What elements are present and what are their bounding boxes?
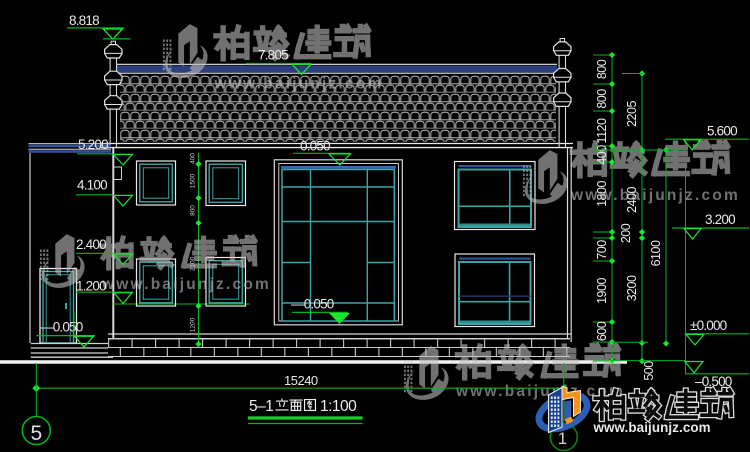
svg-text:800: 800 xyxy=(190,205,197,216)
svg-text:1120: 1120 xyxy=(595,118,609,143)
svg-text:200: 200 xyxy=(619,223,633,243)
svg-text:6100: 6100 xyxy=(649,240,663,266)
svg-text:800: 800 xyxy=(595,89,609,109)
svg-text:8.818: 8.818 xyxy=(69,13,99,28)
svg-text:3200: 3200 xyxy=(625,275,639,301)
svg-text:15240: 15240 xyxy=(284,373,318,388)
svg-text:2400: 2400 xyxy=(625,187,639,213)
svg-text:700: 700 xyxy=(595,240,609,260)
svg-text:www.baijunjz.com: www.baijunjz.com xyxy=(593,420,711,435)
svg-text:1800: 1800 xyxy=(595,181,609,207)
svg-text:500: 500 xyxy=(642,361,656,381)
svg-text:7.805: 7.805 xyxy=(258,48,288,63)
svg-text:5–1: 5–1 xyxy=(249,398,273,415)
svg-text:1900: 1900 xyxy=(595,278,609,304)
svg-text:—0.050: —0.050 xyxy=(291,297,334,312)
svg-text:www.baijunjz.com: www.baijunjz.com xyxy=(214,76,384,93)
svg-text:2205: 2205 xyxy=(625,101,639,127)
svg-text:600: 600 xyxy=(595,321,609,341)
svg-text:800: 800 xyxy=(595,59,609,79)
svg-text:400: 400 xyxy=(190,153,197,164)
svg-text:3.200: 3.200 xyxy=(705,212,735,227)
svg-text:±0.000: ±0.000 xyxy=(690,318,727,333)
svg-text:1.200: 1.200 xyxy=(76,279,106,294)
svg-text:0.050: 0.050 xyxy=(300,139,330,154)
svg-text:5.200: 5.200 xyxy=(78,137,108,152)
svg-text:1: 1 xyxy=(558,429,567,448)
svg-text:1:100: 1:100 xyxy=(320,398,357,415)
svg-text:5: 5 xyxy=(30,422,42,445)
svg-text:1200: 1200 xyxy=(190,317,197,332)
svg-text:5.600: 5.600 xyxy=(707,124,737,139)
svg-text:400: 400 xyxy=(595,145,609,165)
svg-text:2.400: 2.400 xyxy=(76,237,106,252)
svg-text:4.100: 4.100 xyxy=(77,178,107,193)
svg-text:—0.050: —0.050 xyxy=(40,320,83,335)
svg-text:www.baijunjz.com: www.baijunjz.com xyxy=(101,276,271,293)
svg-text:1500: 1500 xyxy=(190,173,197,188)
